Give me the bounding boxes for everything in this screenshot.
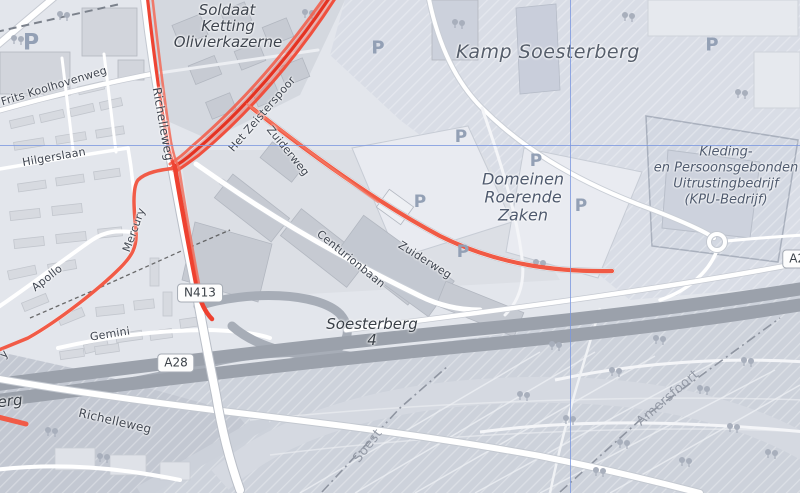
place-label-kpu-line2: en Persoonsgebonden xyxy=(654,161,798,176)
place-label-kpu-line1: Kleding- xyxy=(699,145,752,160)
place-label-domeinen-line2: Roerende xyxy=(484,188,561,207)
road-badge-a28: A28 xyxy=(157,354,194,373)
place-label-kpu-line4: (KPU-Bedrijf) xyxy=(684,193,767,208)
place-label-kamp-soesterberg: Kamp Soesterberg xyxy=(456,41,640,63)
street-label-fragment-erg: erg xyxy=(0,391,23,412)
exit-label-number: 4 xyxy=(367,331,377,349)
place-label-soldaat-line3: Olivierkazerne xyxy=(174,33,282,51)
parking-icon: P xyxy=(705,35,718,56)
place-label-kpu-line3: Uitrustingbedrijf xyxy=(673,177,778,192)
parking-icon: P xyxy=(530,151,542,171)
parking-icon: P xyxy=(457,242,469,262)
parking-icon: P xyxy=(455,127,467,147)
parking-icon: P xyxy=(414,192,426,212)
crosshair-horizontal-line xyxy=(0,145,800,146)
parking-icon: P xyxy=(371,38,384,59)
map-canvas[interactable]: Soldaat Ketting Olivierkazerne Kamp Soes… xyxy=(0,0,800,493)
place-label-domeinen-line3: Zaken xyxy=(498,206,548,225)
crosshair-vertical-line xyxy=(570,0,571,493)
place-label-domeinen-line1: Domeinen xyxy=(482,170,564,189)
parking-icon: P xyxy=(23,31,39,56)
road-badge-a28-right-edge: A28 xyxy=(782,250,800,269)
parking-icon: P xyxy=(575,196,587,216)
road-badge-n413: N413 xyxy=(177,284,223,303)
